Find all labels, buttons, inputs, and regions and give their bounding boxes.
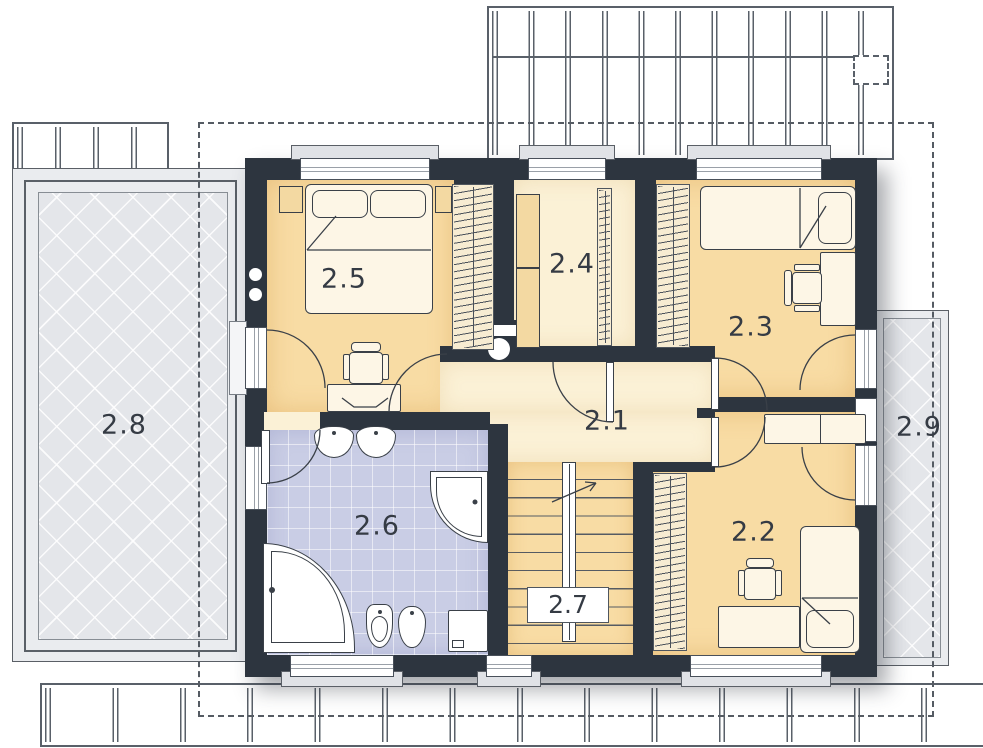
window-2-4	[528, 158, 606, 180]
wall-hall-north-east	[613, 346, 715, 362]
bath-door-threshold	[264, 412, 322, 430]
room-label-2-7: 2.7	[527, 587, 609, 623]
wall-2-4-2-3	[635, 180, 655, 362]
wardrobe-2-5	[452, 184, 494, 350]
desk-2-2	[718, 606, 800, 648]
balcony-door-2-2	[855, 445, 877, 506]
wardrobe-2-3	[656, 184, 690, 348]
room-label-2-2: 2.2	[731, 517, 777, 548]
wall-hall-south-east	[653, 462, 715, 472]
washer-detail	[452, 640, 464, 648]
room-label-2-5: 2.5	[321, 264, 367, 295]
balcony-door-2-3	[855, 329, 877, 389]
chair-arm-2-5-r	[382, 354, 389, 380]
pillow-right	[370, 190, 426, 218]
window-2-3	[696, 158, 822, 180]
window-2-5	[300, 158, 430, 180]
room-label-2-6: 2.6	[354, 511, 400, 542]
cabinet-2-4-b	[516, 268, 540, 348]
chair-back-2-3	[784, 270, 792, 306]
nightstand-right	[435, 186, 452, 213]
wall-dot-1	[249, 268, 262, 281]
cabinet-2-4-a	[516, 194, 540, 268]
pillow-2-2	[806, 610, 854, 648]
wall-dot-2	[249, 288, 262, 301]
chair-back-2-2	[746, 558, 774, 568]
nightstand-left	[279, 186, 303, 213]
room-label-2-1: 2.1	[584, 406, 630, 437]
door-leaf-2-3	[711, 358, 719, 410]
wardrobe-rail-2-4	[597, 188, 612, 346]
pergola-top-left	[12, 122, 169, 174]
room-label-2-8: 2.8	[101, 410, 147, 441]
chair-arm-2-3-b	[794, 305, 820, 312]
shelf-2-2	[764, 414, 866, 444]
window-2-6	[290, 655, 394, 677]
pillow-2-3	[818, 192, 852, 244]
wall-2-3-2-2	[713, 397, 855, 412]
pergola-dashed-detail	[853, 55, 889, 85]
chair-seat-2-5	[349, 352, 383, 384]
chair-seat-2-2	[744, 568, 776, 600]
door-leaf-bath	[261, 430, 270, 484]
door-leaf-2-2	[711, 417, 719, 467]
wall-bath-stairs	[488, 424, 508, 655]
wall-stairs-2-2	[633, 462, 653, 655]
room-label-2-3: 2.3	[728, 312, 774, 343]
chair-arm-2-3-t	[794, 264, 820, 271]
chair-arm-2-2-l	[738, 570, 745, 596]
room-label-2-9: 2.9	[896, 412, 942, 443]
chair-seat-2-3	[792, 272, 822, 304]
floor-plan: 2.1 2.2 2.3 2.4 2.5 2.6 2.7 2.8 2.9	[0, 0, 983, 748]
chair-arm-2-2-r	[775, 570, 782, 596]
balcony-door-2-5	[245, 327, 267, 389]
desk-2-5	[327, 384, 401, 412]
window-2-7	[486, 655, 532, 677]
window-2-2	[690, 655, 822, 677]
wardrobe-2-2	[653, 473, 687, 651]
pillow-left	[312, 190, 368, 218]
chair-arm-2-5-l	[343, 354, 350, 380]
chair-back-2-5	[351, 342, 381, 352]
shelf-divider	[820, 415, 821, 443]
hall-upper	[440, 362, 715, 412]
room-label-2-4: 2.4	[549, 249, 595, 280]
desk-2-3	[820, 252, 856, 326]
